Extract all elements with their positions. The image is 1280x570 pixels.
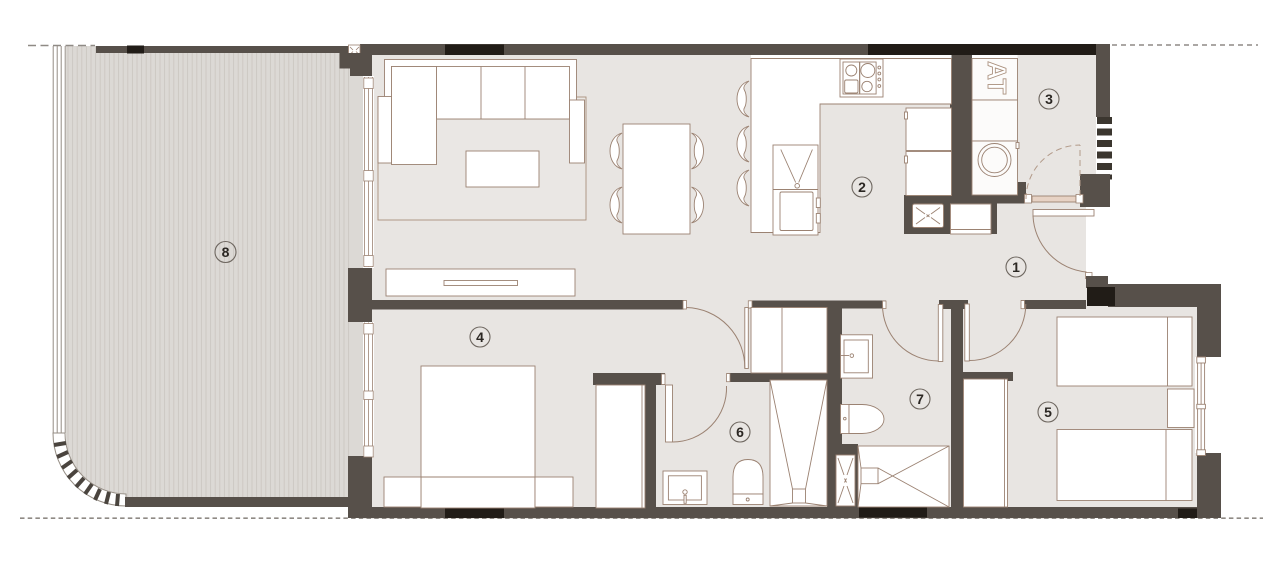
svg-text:4: 4 [476,329,484,345]
svg-text:3: 3 [1045,91,1053,107]
svg-text:AT: AT [982,61,1012,95]
svg-text:5: 5 [1044,404,1052,420]
svg-text:8: 8 [222,244,230,260]
svg-text:6: 6 [736,424,744,440]
svg-text:1: 1 [1012,259,1020,275]
svg-text:7: 7 [916,391,924,407]
svg-text:2: 2 [858,179,866,195]
